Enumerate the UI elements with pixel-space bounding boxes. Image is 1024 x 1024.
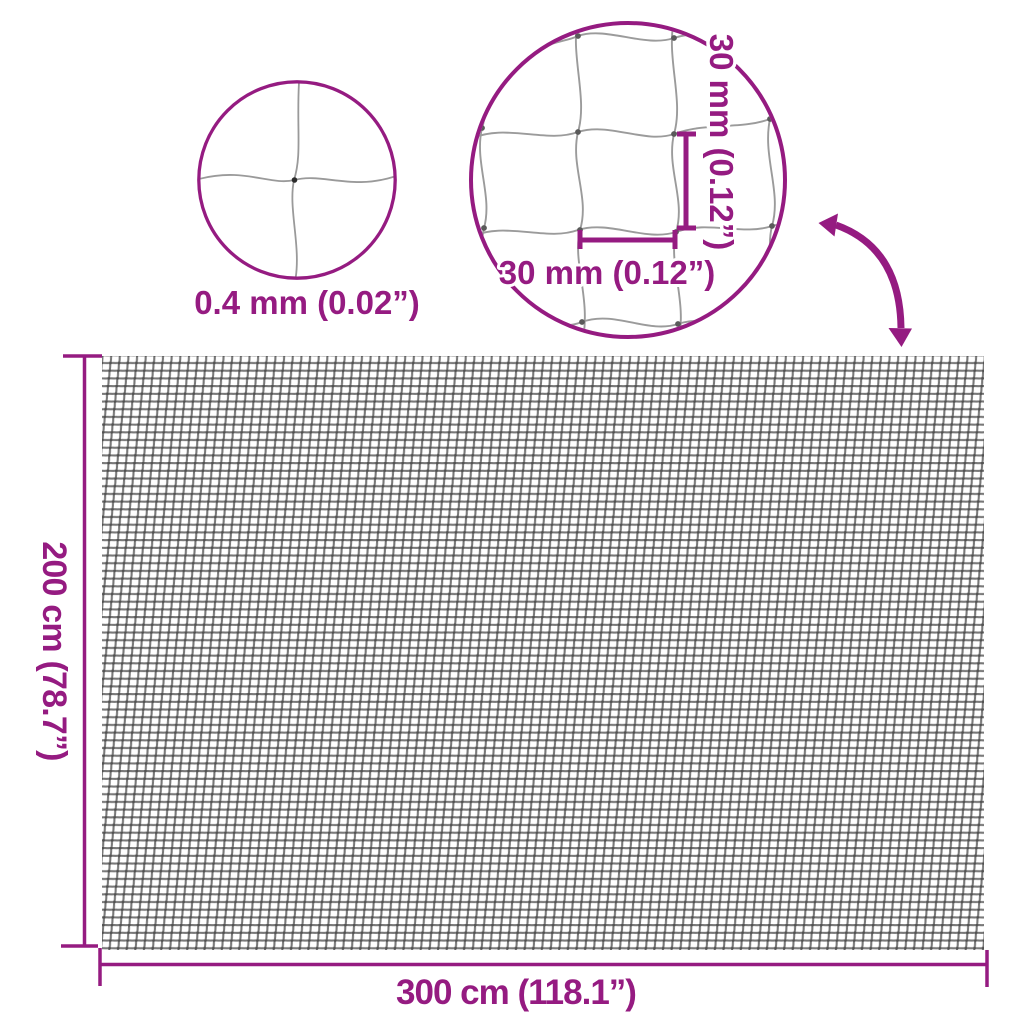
- svg-text:30 mm (0.12”): 30 mm (0.12”): [499, 254, 715, 291]
- svg-text:200 cm (78.7”): 200 cm (78.7”): [35, 541, 73, 760]
- svg-text:30 mm (0.12”): 30 mm (0.12”): [703, 34, 740, 250]
- svg-text:300 cm (118.1”): 300 cm (118.1”): [396, 973, 636, 1012]
- svg-text:0.4 mm (0.02”): 0.4 mm (0.02”): [194, 284, 420, 321]
